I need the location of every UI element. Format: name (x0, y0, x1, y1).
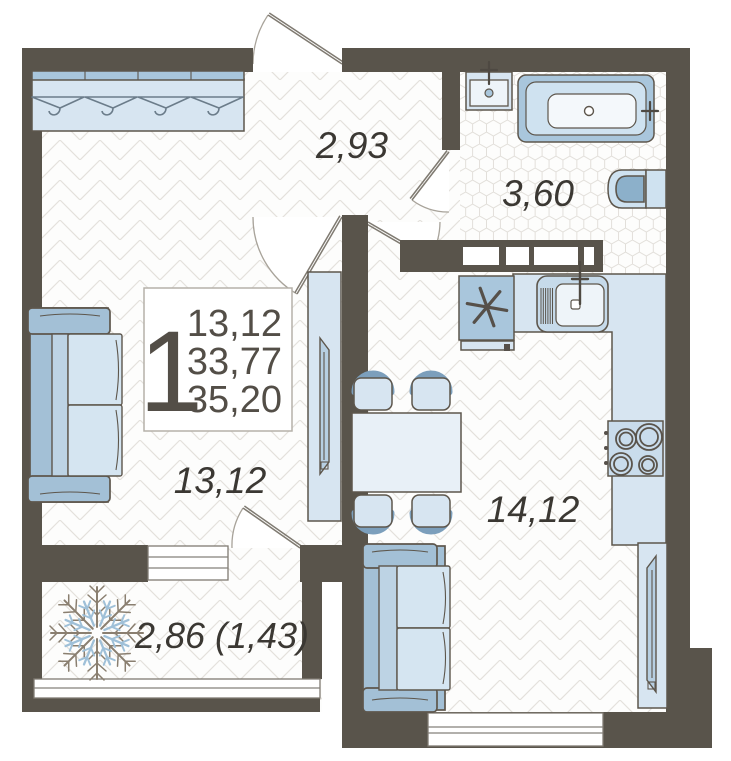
balcony-area-label: 2,86 (1,43) (134, 615, 309, 656)
dining-table (352, 413, 461, 492)
wall-bathroom-left (442, 72, 460, 150)
wall-right (666, 48, 690, 648)
hallway-area-label: 2,93 (315, 125, 388, 166)
tv-console-living (308, 272, 341, 521)
duct-niche (584, 247, 594, 265)
living-area-value: 13,12 (187, 303, 282, 345)
toilet-bowl (616, 176, 644, 202)
living-area-label: 13,12 (174, 460, 267, 501)
wall-top-right (342, 48, 690, 72)
total-area-value: 35,20 (187, 379, 282, 421)
duct-niche (506, 247, 529, 265)
wardrobe (32, 71, 244, 131)
kitchen-window (428, 713, 603, 746)
fridge (459, 276, 514, 351)
apartment-area-value: 33,77 (187, 341, 282, 383)
balcony-outer-window (34, 679, 320, 698)
drain-icon (571, 300, 580, 309)
cooktop (604, 421, 663, 476)
duct-niche (534, 247, 578, 265)
floor-plan-svg: 1 13,12 33,77 35,20 (0, 0, 731, 761)
tv-console-kitchen (638, 543, 667, 708)
balcony-inner-window (148, 546, 228, 580)
floor-plan-page: 1 13,12 33,77 35,20 (0, 0, 731, 761)
toilet (608, 170, 666, 208)
wall-balcony-left (22, 545, 148, 582)
exterior-notch (322, 582, 342, 712)
info-box: 1 13,12 33,77 35,20 (139, 288, 292, 436)
wall-balcony-bottom (22, 697, 320, 712)
duct-niche (463, 247, 499, 265)
kitchen-area-label: 14,12 (487, 489, 580, 530)
sofa-living (28, 308, 122, 502)
wall-top-left (22, 48, 253, 72)
bathroom-area-label: 3,60 (502, 173, 574, 214)
drain-icon (585, 107, 594, 116)
wall-balcony-right (300, 545, 342, 582)
sofa-kitchen (363, 544, 450, 712)
bathtub (518, 75, 658, 142)
